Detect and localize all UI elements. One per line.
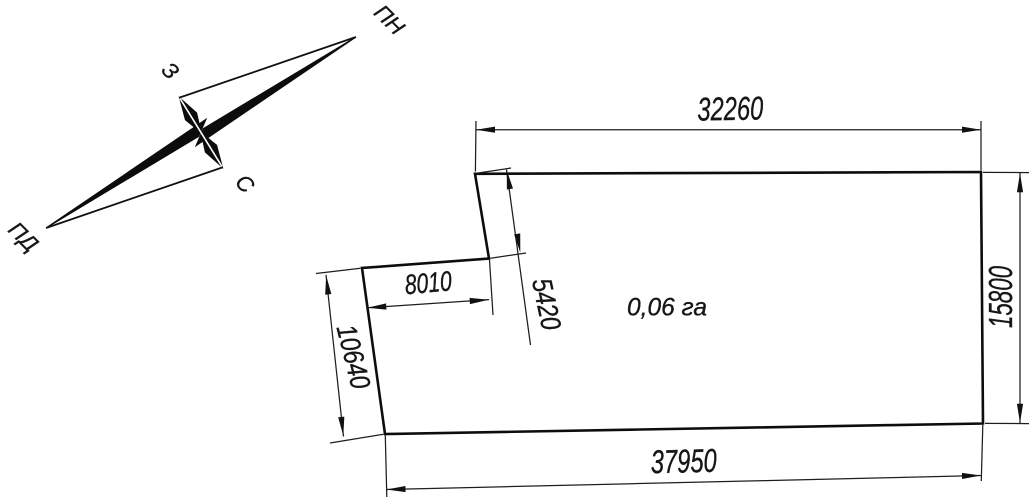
svg-text:32260: 32260	[697, 89, 764, 127]
svg-text:ПД: ПД	[3, 217, 43, 257]
svg-text:ПН: ПН	[369, 0, 409, 40]
svg-text:37950: 37950	[650, 442, 717, 481]
svg-text:С: С	[230, 169, 259, 198]
svg-text:0,06 га: 0,06 га	[627, 294, 707, 322]
svg-text:З: З	[157, 57, 185, 85]
svg-text:8010: 8010	[403, 265, 453, 300]
svg-text:5420: 5420	[526, 275, 567, 333]
svg-text:15800: 15800	[982, 266, 1019, 328]
